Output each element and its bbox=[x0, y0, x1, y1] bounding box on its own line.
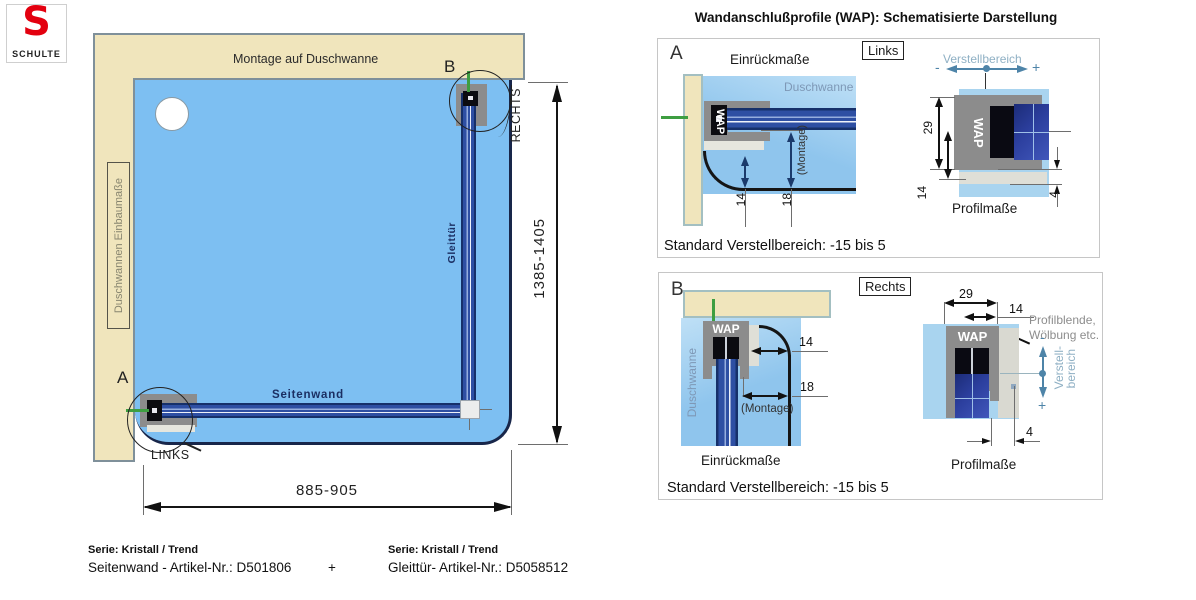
panel-a-profile2-midline bbox=[1049, 131, 1071, 132]
panel-a-verstellbereich-label: Verstellbereich bbox=[943, 52, 1022, 66]
panel-b-dim4-arrow-right-icon bbox=[982, 438, 991, 444]
panel-b-dim14b-label: 14 bbox=[1009, 302, 1023, 316]
dim-height-line bbox=[556, 86, 558, 442]
dim-width-line bbox=[145, 506, 510, 508]
footer-left-artikel: Seitenwand - Artikel-Nr.: D501806 bbox=[88, 560, 291, 575]
panel-a-adjust-arrow-right-icon bbox=[1017, 65, 1028, 73]
panel-b-profile2-leg-left bbox=[946, 391, 955, 418]
panel-a-dim4-line1 bbox=[998, 169, 1062, 170]
left-wall-label: Duschwannen Einbaumaße bbox=[113, 178, 125, 313]
panel-b-adjust-minus: - bbox=[1040, 329, 1045, 345]
panel-a-dim29-line bbox=[938, 105, 940, 163]
panel-b-verstell-label-2: bereich bbox=[1064, 349, 1078, 388]
schulte-logo-icon: S bbox=[7, 0, 66, 45]
panel-b-adjust-plus: + bbox=[1038, 397, 1046, 413]
panel-a-dim4-label: 4 bbox=[1047, 191, 1061, 198]
profile2-black-divider bbox=[971, 348, 973, 374]
panel-a-wall bbox=[683, 74, 703, 226]
dim-height-arrow-down-icon bbox=[552, 426, 562, 444]
panel-b-marker: B bbox=[671, 279, 684, 301]
door-crosshair-v bbox=[1033, 104, 1034, 160]
panel-b-profile2-leg-right bbox=[990, 391, 999, 401]
panel-a-dim29-arrow-down-icon bbox=[935, 159, 943, 169]
dim-height-arrow-up-icon bbox=[552, 84, 562, 102]
dim-height-ext-bottom bbox=[518, 444, 568, 445]
panel-b-dim29-line bbox=[953, 302, 989, 304]
panel-b-dim14-label: 14 bbox=[799, 335, 813, 349]
panel-a-adjust-dot bbox=[983, 65, 990, 72]
panel-b-montage-label: (Montage) bbox=[741, 403, 793, 415]
logo-box: S SCHULTE bbox=[6, 4, 67, 63]
panel-a-profilmasse-label: Profilmaße bbox=[952, 201, 1017, 216]
footer-right-artikel: Gleittür- Artikel-Nr.: D5058512 bbox=[388, 560, 568, 575]
panel-b-wap-label: WAP bbox=[703, 322, 749, 336]
footer-right-serie: Serie: Kristall / Trend bbox=[388, 544, 498, 556]
panel-a-adjust-arrow-left-icon bbox=[946, 65, 957, 73]
panel-a-adjust-plus: + bbox=[1032, 59, 1040, 75]
gleittuer-bar bbox=[461, 93, 476, 410]
panel-b-duschwanne-label: Duschwanne bbox=[685, 348, 699, 417]
panel-b-footer: Standard Verstellbereich: -15 bis 5 bbox=[667, 480, 889, 496]
panel-b-wall bbox=[683, 290, 831, 318]
rechts-label: RECHTS bbox=[509, 88, 523, 142]
connector-tick-right bbox=[480, 409, 492, 410]
panel-a-profile2-door bbox=[1014, 104, 1049, 160]
panel-b-wap-leg-left bbox=[703, 366, 712, 379]
panel-a-dim14b-label: 14 bbox=[915, 186, 929, 199]
panel-a-duschwanne-label: Duschwanne bbox=[784, 80, 853, 94]
door2-crosshair-v bbox=[972, 374, 973, 418]
panel-a-adjust-minus: - bbox=[935, 59, 940, 75]
panel-b-dim29-arrow-right-icon bbox=[987, 299, 997, 307]
panel-b-dim4-label: 4 bbox=[1026, 425, 1033, 439]
panel-a-dim14b-line bbox=[947, 138, 949, 172]
dim-height-ext-top bbox=[528, 82, 568, 83]
panel-b: B Rechts Duschwanne WAP 14 18 (Montage) … bbox=[658, 272, 1103, 500]
panel-a-footer: Standard Verstellbereich: -15 bis 5 bbox=[664, 238, 886, 254]
panel-b-wap-leg-right bbox=[740, 366, 749, 379]
panel-a-dim14-arrow-down-icon bbox=[741, 178, 749, 188]
panel-b-profile2-door bbox=[955, 374, 989, 418]
dim-width-label: 885-905 bbox=[277, 482, 377, 499]
panel-b-dim18-ext bbox=[792, 396, 828, 397]
panel-b-einrueck-label: Einrückmaße bbox=[701, 453, 781, 468]
panel-a-tray-edge bbox=[742, 188, 856, 191]
seitenwand-bar bbox=[150, 403, 478, 418]
corner-connector bbox=[460, 400, 480, 419]
panel-b-dim4-hline-right bbox=[1024, 441, 1040, 442]
panel-b-dim18-label: 18 bbox=[800, 380, 814, 394]
seitenwand-label: Seitenwand bbox=[272, 389, 344, 401]
dim-height-label: 1385-1405 bbox=[531, 218, 548, 299]
panel-b-side-badge: Rechts bbox=[859, 277, 911, 296]
drain-circle bbox=[155, 97, 189, 131]
top-wall-label: Montage auf Duschwanne bbox=[233, 52, 378, 66]
panel-a-wall-profile-bar bbox=[718, 108, 856, 130]
panel-b-dim14-line bbox=[760, 350, 780, 352]
panel-b-dim18-arrow-right-icon bbox=[778, 392, 788, 400]
panel-b-adjust-dot bbox=[1039, 370, 1046, 377]
panel-a-wap2-label: WAP bbox=[958, 97, 986, 169]
detail-circle-a bbox=[127, 387, 193, 453]
panel-b-profilmasse-label: Profilmaße bbox=[951, 457, 1016, 472]
left-wall-label-box: Duschwannen Einbaumaße bbox=[107, 162, 130, 329]
panel-b-adjust-midline bbox=[1000, 373, 1040, 374]
panel-b-adjust-arrow-up-icon bbox=[1039, 346, 1047, 357]
wap-black-divider bbox=[725, 337, 727, 359]
panel-b-dim14b-arrow-right-icon bbox=[986, 313, 996, 321]
panel-b-tray-edge bbox=[788, 355, 791, 446]
panel-b-wap2-label: WAP bbox=[946, 329, 999, 344]
panel-a-dim4-vline1 bbox=[1057, 147, 1058, 161]
marker-a: A bbox=[117, 368, 128, 388]
panel-a-green-mark bbox=[661, 116, 688, 119]
panel-a-side-badge: Links bbox=[862, 41, 904, 60]
panel-b-dim4-vline1 bbox=[991, 418, 992, 446]
connector-tick-down bbox=[469, 419, 470, 430]
panel-a-einrueck-label: Einrückmaße bbox=[730, 52, 810, 67]
profilblende-line1: Profilblende, bbox=[1029, 313, 1109, 328]
footer-plus: + bbox=[328, 560, 336, 575]
panel-a-dim18-label: 18 bbox=[780, 193, 794, 206]
panel-a-dim18-arrow-down-icon bbox=[787, 178, 795, 188]
panel-b-dim14-ext bbox=[792, 351, 828, 352]
panel-a-marker: A bbox=[670, 43, 683, 65]
footer-left-serie: Serie: Kristall / Trend bbox=[88, 544, 198, 556]
panel-b-dim4-vline2 bbox=[1014, 386, 1015, 446]
panel-a-dim14b-arrow-down-icon bbox=[944, 169, 952, 179]
panel-b-wap-strip bbox=[749, 325, 759, 366]
page: S SCHULTE Montage auf Duschwanne Duschwa… bbox=[0, 0, 1196, 600]
panel-b-dim14-arrow-right-icon bbox=[778, 347, 788, 355]
panel-a-dim14b-tick bbox=[939, 179, 966, 180]
panel-b-dim18-line bbox=[751, 395, 780, 397]
panel-b-dim4-hline-left bbox=[967, 441, 983, 442]
panel-a-dim18-line bbox=[790, 139, 792, 180]
dim-width-arrow-right-icon bbox=[494, 502, 512, 512]
panel-b-door-bar bbox=[716, 359, 738, 446]
panel-b-dim29-label: 29 bbox=[959, 287, 973, 301]
panel-a-dim14-label: 14 bbox=[734, 193, 748, 206]
panel-a: A Einrückmaße Links Duschwanne WAP 14 18… bbox=[657, 38, 1100, 258]
panel-a-wap-label: WAP bbox=[706, 103, 726, 141]
panel-b-dim4-arrow-left-icon bbox=[1015, 438, 1024, 444]
wap-section-title: Wandanschlußprofile (WAP): Schematisiert… bbox=[650, 10, 1102, 25]
marker-b: B bbox=[444, 57, 455, 77]
door-crosshair-h bbox=[1014, 132, 1049, 133]
gleittuer-label: Gleittür bbox=[446, 222, 458, 263]
panel-a-dim29-label: 29 bbox=[921, 121, 935, 134]
panel-a-montage-label: (Montage) bbox=[796, 125, 808, 175]
panel-b-profile2-black bbox=[955, 348, 989, 374]
panel-a-profile2-strip bbox=[959, 172, 1047, 184]
panel-a-dim4-arrow-down-icon bbox=[1054, 160, 1060, 169]
panel-b-wap-black bbox=[713, 337, 739, 359]
dim-width-arrow-left-icon bbox=[143, 502, 161, 512]
panel-a-wap-strip bbox=[704, 141, 764, 150]
links-label: LINKS bbox=[151, 448, 190, 462]
logo-brand-name: SCHULTE bbox=[7, 49, 66, 59]
